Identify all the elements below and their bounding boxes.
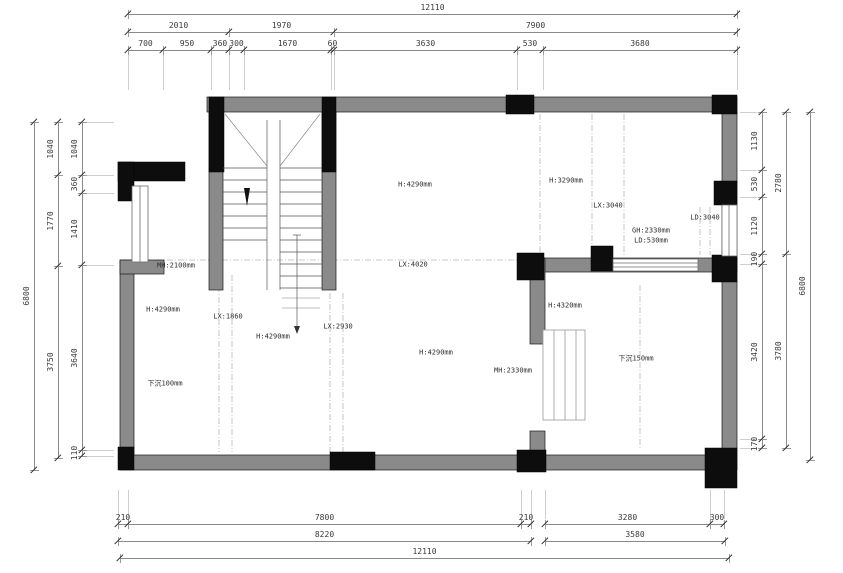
column xyxy=(517,450,546,472)
furniture xyxy=(543,330,585,420)
room-label: GH:2330mm xyxy=(632,228,670,235)
room-label: LX:4020 xyxy=(398,262,428,269)
dim-extension-line xyxy=(87,175,114,176)
dim-extension-line xyxy=(87,122,114,123)
stair-winder xyxy=(225,114,267,166)
dim-value: 300 xyxy=(229,40,243,48)
dim-extension-line xyxy=(128,55,129,90)
dim-extension-line xyxy=(740,170,757,171)
dim-value: 530 xyxy=(523,40,537,48)
room-label: MH:2330mm xyxy=(494,368,532,375)
dim-value: 950 xyxy=(180,40,194,48)
dim-extension-line xyxy=(545,490,546,519)
dim-extension-line xyxy=(737,55,738,90)
dim-value: 700 xyxy=(138,40,152,48)
wardrobe xyxy=(543,330,585,420)
room-label: LX:2930 xyxy=(323,324,353,331)
dim-value: 3580 xyxy=(625,531,644,539)
room-label: 下沉100mm xyxy=(147,381,182,388)
dim-value: 530 xyxy=(751,176,759,190)
room-label: LX:3040 xyxy=(593,203,623,210)
dim-value: 210 xyxy=(519,514,533,522)
column xyxy=(330,452,375,470)
column xyxy=(517,253,544,280)
dim-line xyxy=(786,112,787,448)
dim-extension-line xyxy=(87,265,114,266)
dim-value: 3420 xyxy=(751,342,759,361)
dim-extension-line xyxy=(334,55,335,90)
dim-extension-line xyxy=(87,456,114,457)
dim-extension-line xyxy=(740,112,757,113)
dim-value: 12110 xyxy=(420,4,444,12)
dim-value: 300 xyxy=(710,514,724,522)
dim-extension-line xyxy=(543,55,544,90)
dim-value: 1040 xyxy=(71,139,79,158)
dim-extension-line xyxy=(740,197,757,198)
room-label: H:4320mm xyxy=(548,303,582,310)
dim-value: 170 xyxy=(751,436,759,450)
dim-value: 190 xyxy=(751,252,759,266)
dim-extension-line xyxy=(163,55,164,90)
column xyxy=(712,95,737,114)
dim-line xyxy=(545,524,724,525)
dim-line xyxy=(128,32,737,33)
dim-value: 3640 xyxy=(71,348,79,367)
column xyxy=(118,447,134,470)
dim-line xyxy=(545,541,725,542)
room-label: H:3290mm xyxy=(549,178,583,185)
dim-value: 1970 xyxy=(272,22,291,30)
wall-bottom xyxy=(120,455,737,470)
dim-extension-line xyxy=(331,55,332,90)
dim-extension-line xyxy=(211,55,212,90)
room-label: H:4290mm xyxy=(398,182,432,189)
column xyxy=(712,255,737,282)
wall-right xyxy=(722,112,737,455)
column xyxy=(322,97,336,172)
dim-value: 1770 xyxy=(47,211,55,230)
stair-direction-arrow xyxy=(244,188,250,206)
column xyxy=(714,181,737,205)
dim-value: 360 xyxy=(213,40,227,48)
stair-winder xyxy=(280,114,320,166)
dim-value: 1410 xyxy=(71,219,79,238)
column xyxy=(209,97,224,172)
dim-value: 8220 xyxy=(315,531,334,539)
dim-value: 1120 xyxy=(751,216,759,235)
dim-value: 210 xyxy=(116,514,130,522)
room-label: H:4290mm xyxy=(146,307,180,314)
dim-value: 12110 xyxy=(412,548,436,556)
room-label: MH:2100mm xyxy=(157,263,195,270)
dim-line xyxy=(118,524,531,525)
wall-top xyxy=(207,97,737,112)
window-right xyxy=(722,205,737,256)
dim-line xyxy=(128,50,737,51)
dim-line xyxy=(120,558,729,559)
floor-plan-canvas xyxy=(0,0,843,573)
room-label: LX:1860 xyxy=(213,314,243,321)
column xyxy=(506,95,534,114)
dim-value: 1670 xyxy=(278,40,297,48)
dim-value: 6800 xyxy=(799,276,807,295)
dim-value: 6800 xyxy=(23,286,31,305)
dim-extension-line xyxy=(244,55,245,90)
floor-plan-sheet: 1211020101970790070095036030016706036305… xyxy=(0,0,843,573)
dim-line xyxy=(762,112,763,448)
dim-value: 3780 xyxy=(775,341,783,360)
dim-value: 2010 xyxy=(169,22,188,30)
room-label: H:4290mm xyxy=(256,334,290,341)
column xyxy=(591,246,613,271)
dim-value: 3280 xyxy=(618,514,637,522)
room-label: H:4290mm xyxy=(419,350,453,357)
dim-value: 360 xyxy=(71,177,79,191)
column xyxy=(705,448,737,488)
window-top-right xyxy=(613,259,698,271)
dim-value: 3630 xyxy=(416,40,435,48)
room-label: LD:3040 xyxy=(690,215,720,222)
columns xyxy=(118,95,737,488)
dim-value: 1040 xyxy=(47,139,55,158)
dim-value: 3680 xyxy=(630,40,649,48)
dim-value: 7900 xyxy=(526,22,545,30)
dim-extension-line xyxy=(87,193,114,194)
dim-value: 2780 xyxy=(775,173,783,192)
dim-value: 110 xyxy=(71,446,79,460)
staircase xyxy=(223,114,322,334)
dim-extension-line xyxy=(87,450,114,451)
dim-line xyxy=(128,14,737,15)
dim-line xyxy=(34,122,35,470)
dim-extension-line xyxy=(517,55,518,90)
dim-extension-line xyxy=(229,55,230,90)
dim-value: 60 xyxy=(328,40,338,48)
dim-value: 3750 xyxy=(47,352,55,371)
dim-line xyxy=(810,112,811,460)
room-label: 下沉150mm xyxy=(618,356,653,363)
wall-left-lower xyxy=(120,260,134,455)
dim-value: 7800 xyxy=(315,514,334,522)
stair-guide-arrow xyxy=(294,326,300,334)
room-label: LD:530mm xyxy=(634,238,668,245)
dim-line xyxy=(118,541,531,542)
dim-value: 1130 xyxy=(751,131,759,150)
